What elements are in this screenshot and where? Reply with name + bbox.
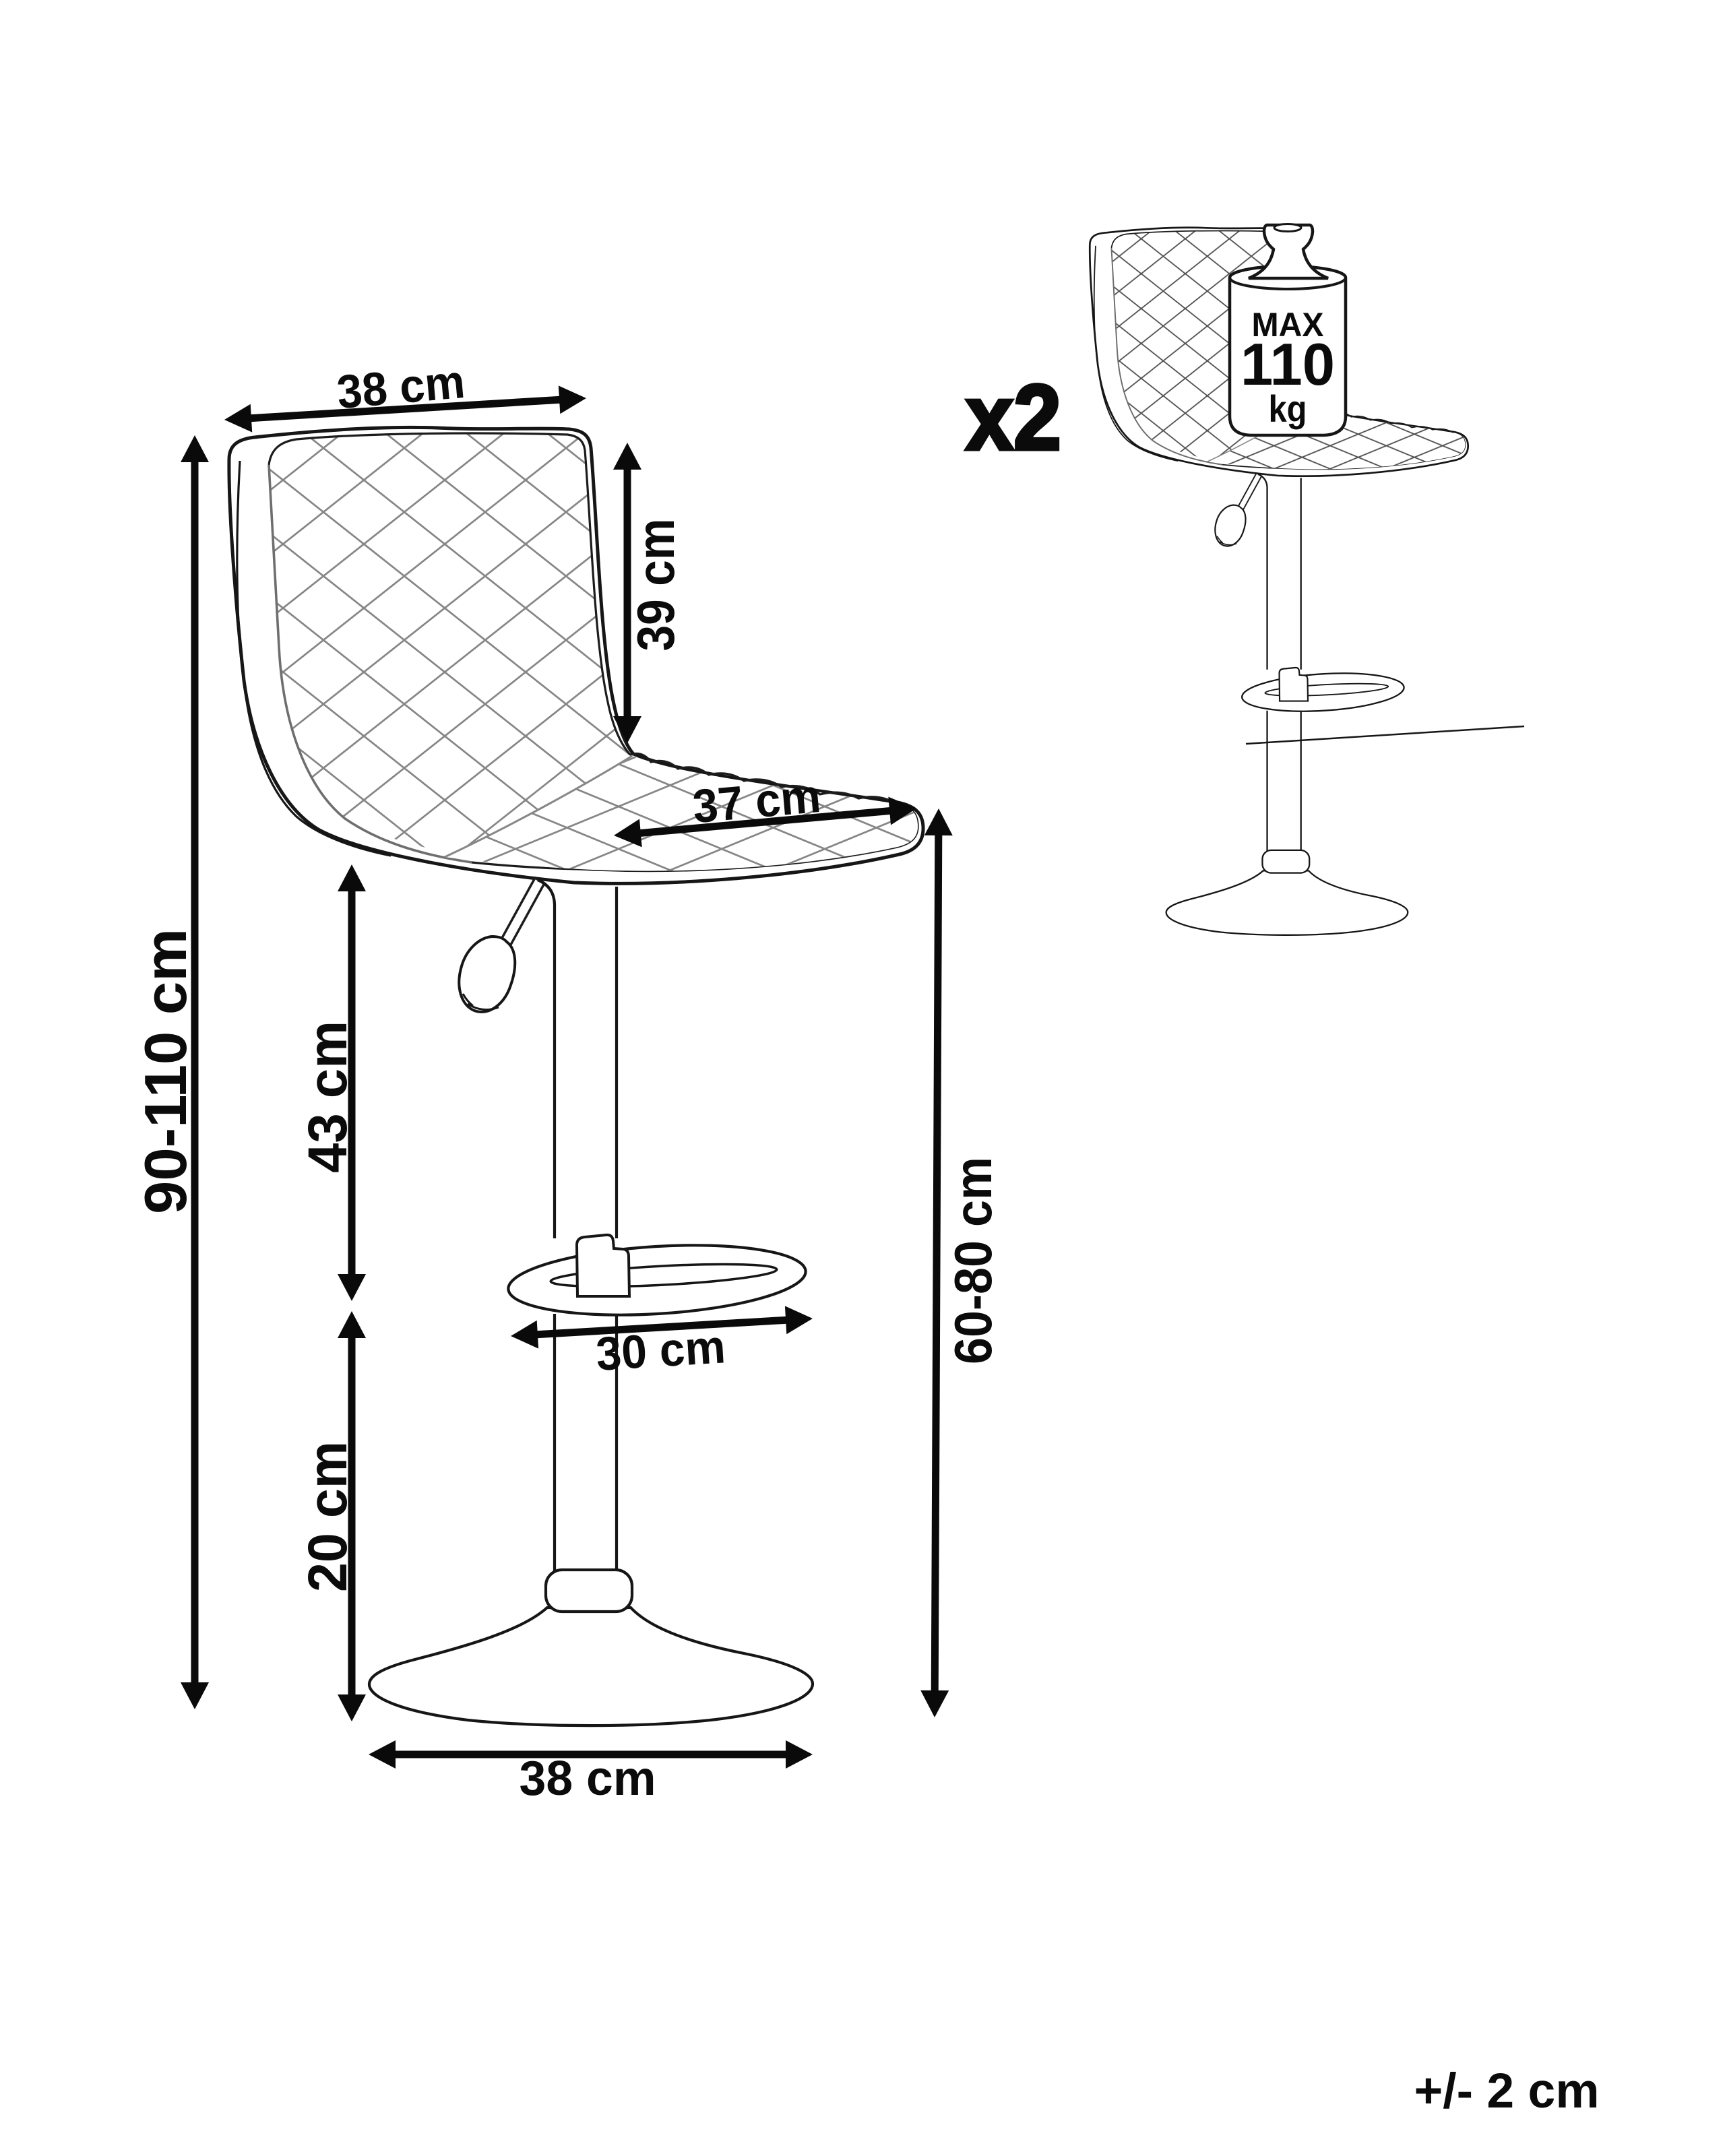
svg-text:30 cm: 30 cm <box>594 1320 726 1381</box>
svg-text:37 cm: 37 cm <box>691 769 823 833</box>
svg-text:+/- 2 cm: +/- 2 cm <box>1414 2064 1600 2118</box>
svg-text:60-80 cm: 60-80 cm <box>943 1157 1003 1364</box>
svg-text:39 cm: 39 cm <box>626 519 685 652</box>
svg-text:43 cm: 43 cm <box>297 1021 358 1173</box>
svg-text:90-110 cm: 90-110 cm <box>132 928 199 1214</box>
svg-text:20 cm: 20 cm <box>297 1441 358 1592</box>
svg-text:38 cm: 38 cm <box>335 355 467 418</box>
svg-text:38 cm: 38 cm <box>520 1752 656 1806</box>
svg-text:kg: kg <box>1269 387 1307 430</box>
svg-text:x2: x2 <box>966 366 1061 470</box>
